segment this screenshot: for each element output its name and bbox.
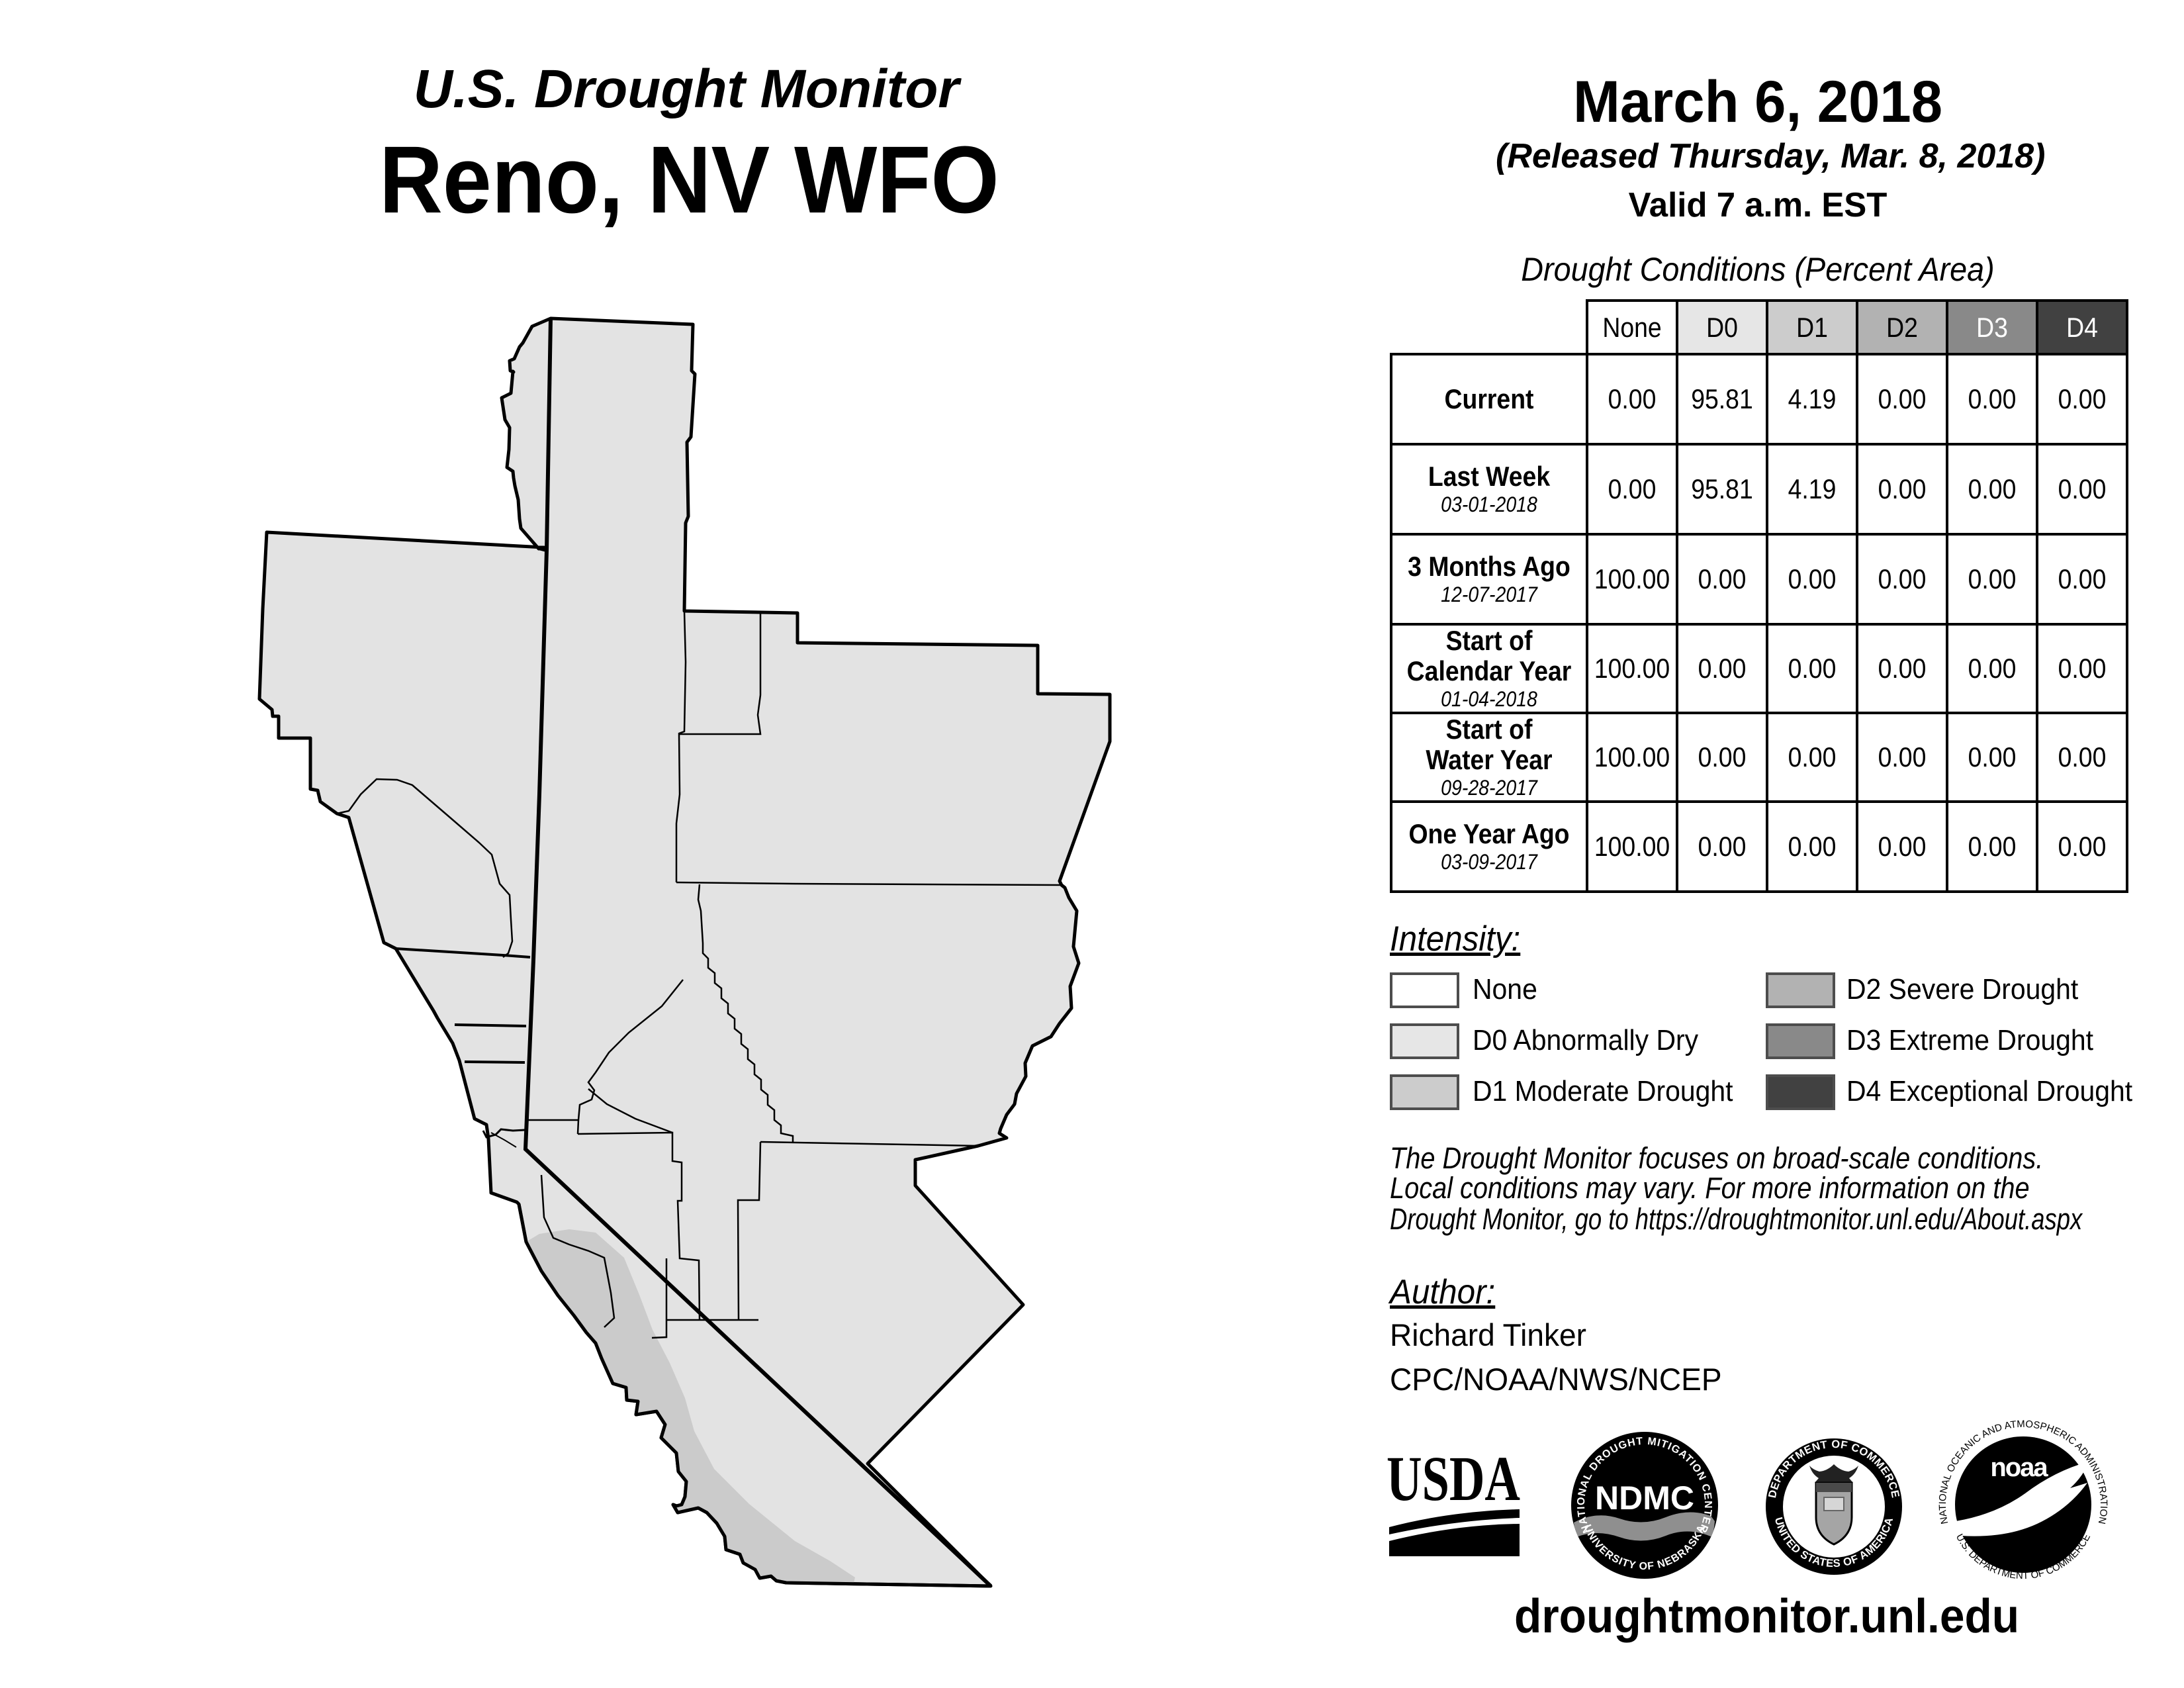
svg-text:★: ★	[1869, 1499, 1882, 1516]
svg-text:NDMC: NDMC	[1595, 1479, 1694, 1517]
svg-text:★: ★	[1784, 1499, 1797, 1516]
svg-text:noaa: noaa	[1990, 1453, 2048, 1482]
svg-text:USDA: USDA	[1387, 1443, 1520, 1514]
